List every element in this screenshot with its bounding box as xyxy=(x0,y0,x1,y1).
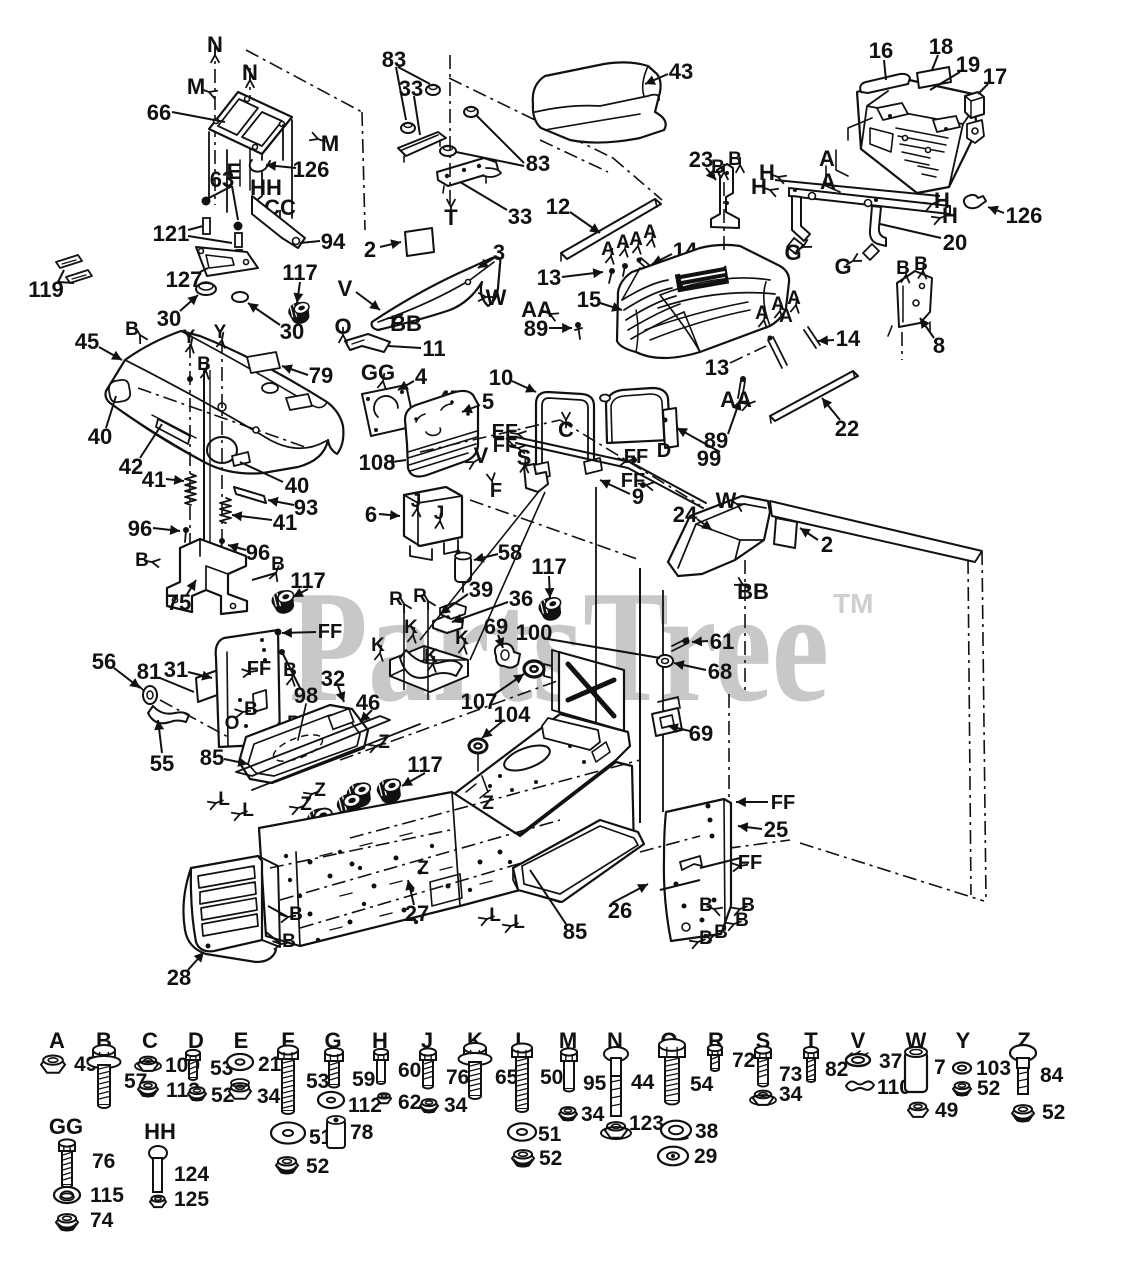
svg-text:FF: FF xyxy=(771,792,795,814)
svg-text:M: M xyxy=(321,131,339,156)
svg-text:Z: Z xyxy=(482,793,494,814)
svg-text:46: 46 xyxy=(356,690,380,715)
svg-text:52: 52 xyxy=(306,1155,329,1178)
svg-text:G: G xyxy=(784,240,801,265)
svg-text:FF: FF xyxy=(247,658,271,680)
svg-text:42: 42 xyxy=(119,454,143,479)
svg-text:24: 24 xyxy=(673,502,698,527)
svg-text:FF: FF xyxy=(318,621,342,643)
svg-text:52: 52 xyxy=(1042,1101,1065,1124)
svg-text:B: B xyxy=(896,258,910,279)
svg-text:A: A xyxy=(819,146,835,171)
svg-text:10: 10 xyxy=(489,365,513,390)
svg-text:O: O xyxy=(225,713,240,734)
svg-text:34: 34 xyxy=(779,1083,803,1106)
svg-text:GG: GG xyxy=(49,1114,83,1139)
svg-text:B: B xyxy=(699,928,713,949)
svg-text:66: 66 xyxy=(147,100,171,125)
svg-text:85: 85 xyxy=(200,745,224,770)
svg-text:L: L xyxy=(489,905,501,926)
svg-text:28: 28 xyxy=(167,965,191,990)
svg-text:62: 62 xyxy=(398,1091,421,1114)
svg-text:49: 49 xyxy=(935,1099,958,1122)
svg-text:C: C xyxy=(142,1028,158,1053)
svg-text:72: 72 xyxy=(732,1049,755,1072)
svg-text:W: W xyxy=(716,488,737,513)
svg-text:B: B xyxy=(271,554,285,575)
svg-text:123: 123 xyxy=(629,1112,664,1135)
svg-text:43: 43 xyxy=(669,59,693,84)
svg-text:Y: Y xyxy=(214,322,227,343)
svg-text:FF: FF xyxy=(738,852,762,874)
svg-text:3: 3 xyxy=(493,240,505,265)
svg-text:30: 30 xyxy=(157,306,181,331)
svg-text:93: 93 xyxy=(294,495,318,520)
svg-text:N: N xyxy=(242,60,258,85)
svg-text:95: 95 xyxy=(583,1072,607,1095)
svg-text:125: 125 xyxy=(174,1188,209,1211)
svg-text:34: 34 xyxy=(444,1094,468,1117)
svg-text:15: 15 xyxy=(577,287,601,312)
svg-text:7: 7 xyxy=(934,1056,946,1079)
svg-text:G: G xyxy=(834,254,851,279)
svg-text:115: 115 xyxy=(90,1184,124,1207)
svg-text:18: 18 xyxy=(929,34,953,59)
svg-text:126: 126 xyxy=(1006,203,1043,228)
svg-text:55: 55 xyxy=(150,751,174,776)
svg-text:L: L xyxy=(242,800,254,821)
svg-text:B: B xyxy=(289,904,303,925)
svg-text:K: K xyxy=(371,635,385,656)
svg-text:M: M xyxy=(187,74,205,99)
svg-text:4: 4 xyxy=(415,364,428,389)
svg-text:A: A xyxy=(49,1028,65,1053)
svg-text:50: 50 xyxy=(540,1066,563,1089)
svg-text:K: K xyxy=(404,617,418,638)
svg-text:37: 37 xyxy=(879,1050,902,1073)
svg-text:L: L xyxy=(513,912,525,933)
svg-text:51: 51 xyxy=(538,1123,562,1146)
svg-text:2: 2 xyxy=(821,532,833,557)
svg-text:126: 126 xyxy=(293,157,330,182)
svg-text:B: B xyxy=(914,254,928,275)
svg-text:60: 60 xyxy=(398,1059,421,1082)
svg-text:V: V xyxy=(474,443,489,468)
svg-text:53: 53 xyxy=(306,1070,329,1093)
svg-text:121: 121 xyxy=(153,221,190,246)
svg-text:GG: GG xyxy=(361,360,395,385)
svg-text:36: 36 xyxy=(509,586,533,611)
svg-text:B: B xyxy=(714,922,728,943)
svg-text:34: 34 xyxy=(257,1085,281,1108)
svg-text:20: 20 xyxy=(943,230,967,255)
svg-text:J: J xyxy=(411,491,422,512)
svg-text:L: L xyxy=(218,789,230,810)
svg-text:V: V xyxy=(851,1028,866,1053)
svg-text:41: 41 xyxy=(142,467,166,492)
svg-text:83: 83 xyxy=(526,151,550,176)
svg-text:A: A xyxy=(629,229,643,250)
svg-text:A: A xyxy=(779,306,793,327)
svg-text:H: H xyxy=(751,174,767,199)
svg-text:BB: BB xyxy=(390,311,422,336)
svg-text:40: 40 xyxy=(88,424,112,449)
svg-text:B: B xyxy=(699,895,713,916)
svg-text:Z: Z xyxy=(314,780,326,801)
svg-text:68: 68 xyxy=(708,659,732,684)
svg-text:27: 27 xyxy=(405,901,429,926)
svg-text:Y: Y xyxy=(183,327,196,348)
svg-text:HH: HH xyxy=(144,1119,176,1144)
svg-text:76: 76 xyxy=(446,1066,469,1089)
svg-text:E: E xyxy=(234,1028,249,1053)
svg-text:94: 94 xyxy=(321,229,346,254)
svg-text:5: 5 xyxy=(482,389,494,414)
svg-text:61: 61 xyxy=(710,629,734,654)
svg-text:81: 81 xyxy=(137,659,161,684)
svg-text:29: 29 xyxy=(694,1145,717,1168)
svg-text:22: 22 xyxy=(835,416,859,441)
svg-text:14: 14 xyxy=(836,326,861,351)
svg-text:76: 76 xyxy=(92,1150,115,1173)
svg-text:K: K xyxy=(455,628,469,649)
svg-text:96: 96 xyxy=(128,516,152,541)
svg-text:16: 16 xyxy=(869,38,893,63)
svg-text:45: 45 xyxy=(75,329,99,354)
svg-text:85: 85 xyxy=(563,919,587,944)
svg-text:124: 124 xyxy=(174,1163,209,1186)
svg-text:63: 63 xyxy=(210,167,234,192)
svg-text:74: 74 xyxy=(90,1209,114,1232)
svg-text:52: 52 xyxy=(539,1147,562,1170)
svg-text:78: 78 xyxy=(350,1121,374,1144)
svg-text:52: 52 xyxy=(977,1077,1000,1100)
svg-text:Z: Z xyxy=(378,732,390,753)
svg-text:23: 23 xyxy=(689,147,713,172)
svg-text:26: 26 xyxy=(608,898,632,923)
svg-text:117: 117 xyxy=(282,260,318,285)
svg-text:33: 33 xyxy=(508,204,532,229)
svg-text:117: 117 xyxy=(531,554,567,579)
svg-text:33: 33 xyxy=(399,76,423,101)
svg-text:V: V xyxy=(338,276,353,301)
svg-text:108: 108 xyxy=(359,450,396,475)
svg-text:44: 44 xyxy=(631,1071,655,1094)
svg-text:59: 59 xyxy=(352,1068,375,1091)
svg-text:K: K xyxy=(424,646,438,667)
svg-text:J: J xyxy=(434,503,445,524)
svg-text:56: 56 xyxy=(92,649,116,674)
svg-text:34: 34 xyxy=(581,1103,605,1126)
svg-text:13: 13 xyxy=(537,265,561,290)
svg-text:N: N xyxy=(207,32,223,57)
svg-text:25: 25 xyxy=(764,817,788,842)
svg-text:13: 13 xyxy=(705,355,729,380)
svg-text:96: 96 xyxy=(246,540,270,565)
svg-text:82: 82 xyxy=(825,1058,848,1081)
svg-text:FF: FF xyxy=(624,446,648,468)
svg-text:Z: Z xyxy=(300,794,312,815)
svg-text:A: A xyxy=(616,232,630,253)
svg-text:8: 8 xyxy=(933,333,945,358)
svg-text:39: 39 xyxy=(469,577,493,602)
svg-text:79: 79 xyxy=(309,363,333,388)
svg-text:31: 31 xyxy=(164,657,188,682)
svg-text:32: 32 xyxy=(321,666,345,691)
svg-text:A: A xyxy=(643,222,657,243)
svg-text:D: D xyxy=(657,440,671,462)
svg-text:12: 12 xyxy=(546,194,570,219)
svg-text:9: 9 xyxy=(632,484,644,509)
svg-text:11: 11 xyxy=(422,336,445,361)
svg-text:6: 6 xyxy=(365,502,377,527)
svg-text:84: 84 xyxy=(1040,1064,1064,1087)
svg-text:38: 38 xyxy=(695,1120,719,1143)
svg-text:2: 2 xyxy=(364,237,376,262)
svg-text:B: B xyxy=(244,699,258,720)
svg-text:B: B xyxy=(282,931,296,952)
svg-text:Z: Z xyxy=(417,858,429,879)
svg-text:83: 83 xyxy=(382,47,406,72)
svg-text:A: A xyxy=(755,303,769,324)
svg-text:B: B xyxy=(735,910,749,931)
svg-text:100: 100 xyxy=(516,620,553,645)
svg-text:Y: Y xyxy=(956,1028,971,1053)
svg-text:A: A xyxy=(820,169,836,194)
svg-text:54: 54 xyxy=(690,1073,714,1096)
svg-text:TM: TM xyxy=(833,588,873,619)
svg-text:89: 89 xyxy=(524,316,548,341)
svg-text:69: 69 xyxy=(484,614,508,639)
svg-text:69: 69 xyxy=(689,721,713,746)
